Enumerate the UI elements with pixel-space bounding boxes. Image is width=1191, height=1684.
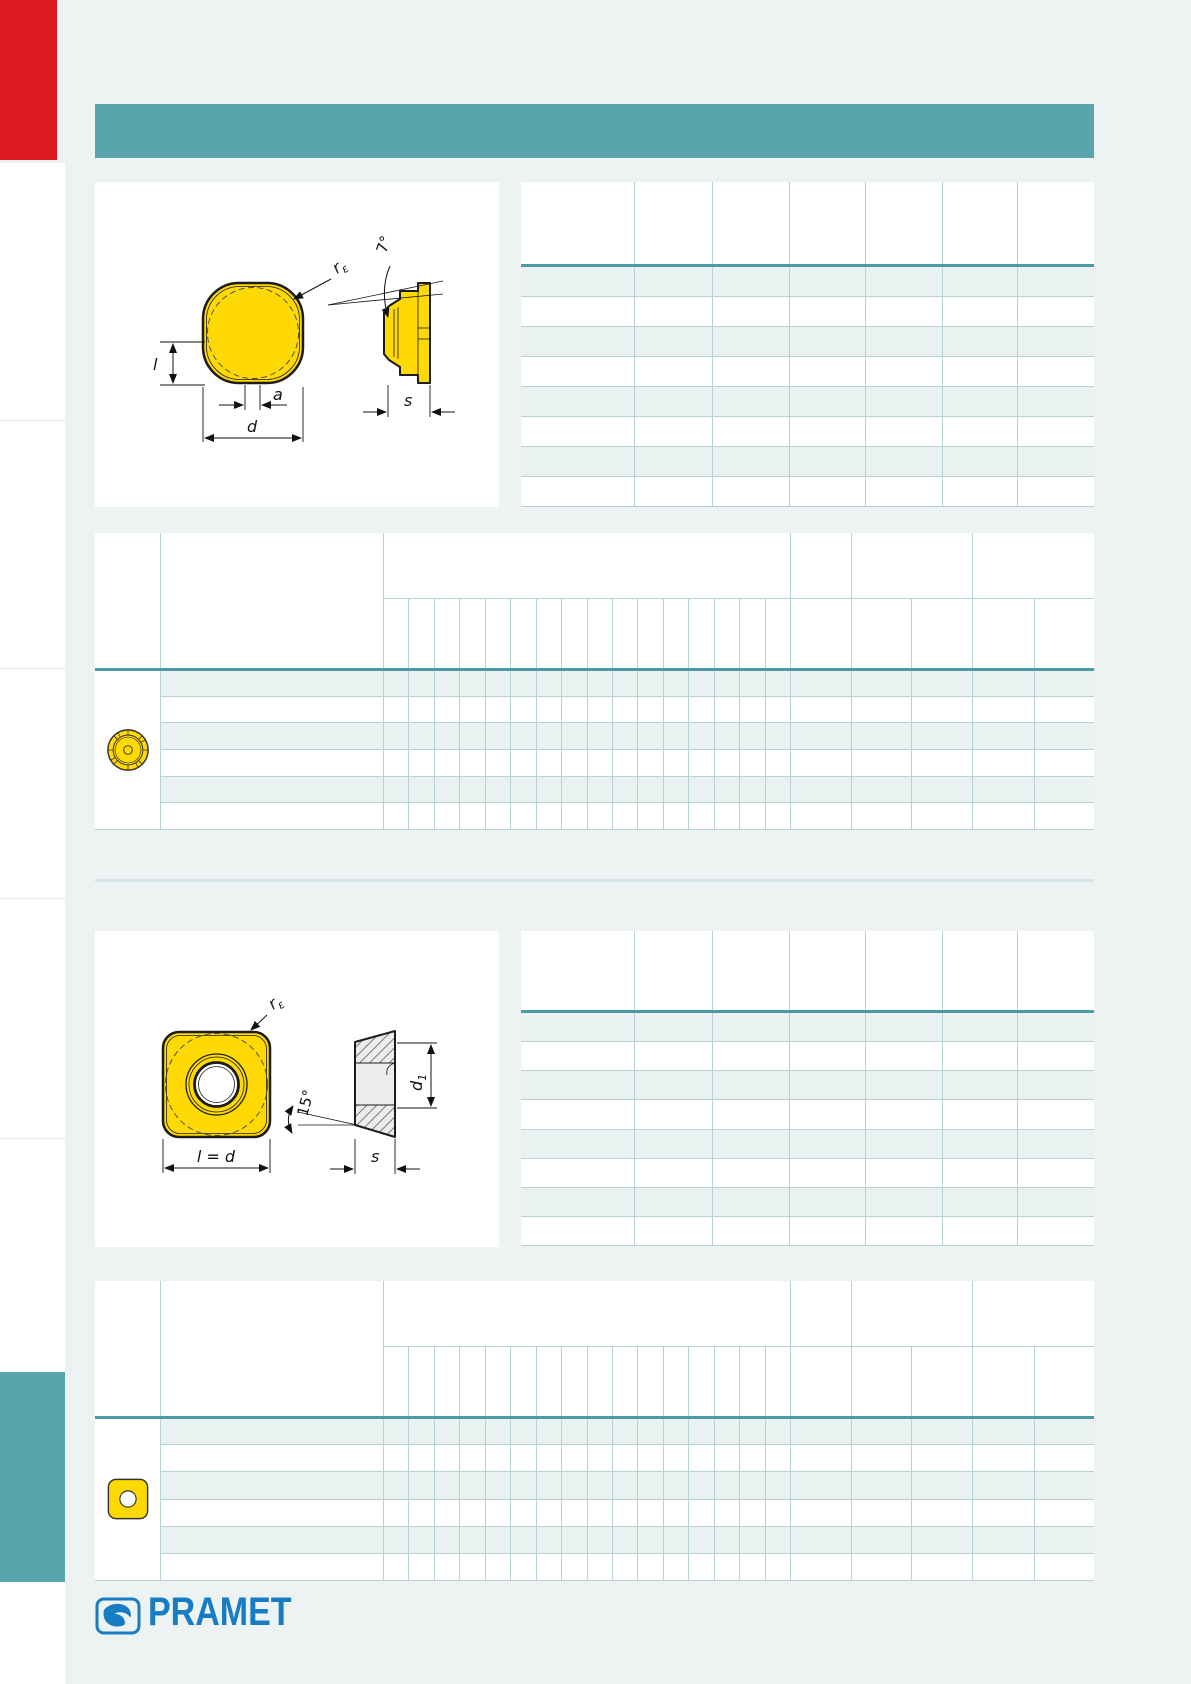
table-subcolumn-line	[434, 598, 435, 830]
table-column-line	[865, 182, 866, 507]
size-label: l = d	[197, 1147, 236, 1166]
table-column-line	[160, 1281, 161, 1581]
table-row-stripe	[521, 447, 1094, 477]
table-subcolumn-line	[739, 598, 740, 830]
round-insert-icon	[105, 727, 151, 773]
table-subcolumn-line	[459, 598, 460, 830]
table-subcolumn-line	[408, 1346, 409, 1581]
table-row-line	[521, 1245, 1094, 1246]
table-subcolumn-line	[510, 598, 511, 830]
round-insert-drawing: rε l a d	[95, 182, 499, 507]
catalog-page: rε l a d	[0, 0, 1191, 1684]
table-subcolumn-line	[765, 598, 766, 830]
table-row-line	[160, 1499, 1094, 1500]
table-bottom-line	[95, 1580, 1094, 1581]
table-row-stripe	[521, 1130, 1094, 1159]
table-row-stripe	[160, 1472, 1094, 1499]
square-insert-grades-table	[95, 1281, 1094, 1581]
table-row-line	[160, 749, 1094, 750]
table-subcolumn-line	[637, 1346, 638, 1581]
table-subcolumn-line	[739, 1346, 740, 1581]
table-subcolumn-line	[485, 598, 486, 830]
round-insert-front-view	[203, 283, 303, 383]
table-column-line	[712, 182, 713, 507]
table-row-stripe	[160, 1527, 1094, 1554]
table-subcolumn-line	[612, 1346, 613, 1581]
corner-radius-label: rε	[251, 990, 287, 1030]
square-insert-icon	[106, 1477, 150, 1521]
square-insert-section-view: 15° s d1	[288, 1031, 437, 1174]
table-header-underline	[95, 668, 1094, 671]
flat-label: a	[273, 385, 283, 404]
table-column-line	[851, 533, 852, 830]
svg-text:rε: rε	[264, 990, 287, 1015]
square-insert-dimensions-table	[521, 931, 1094, 1246]
table-column-line	[712, 931, 713, 1246]
table-column-line	[790, 533, 791, 830]
table-column-line	[634, 931, 635, 1246]
table-subcolumn-line	[587, 1346, 588, 1581]
table-subcolumn-line	[459, 1346, 460, 1581]
table-subcolumn-line	[485, 1346, 486, 1581]
table-header-underline	[521, 1010, 1094, 1013]
table-row-stripe	[160, 1418, 1094, 1445]
diameter-label: d	[247, 417, 258, 436]
round-insert-side-view: 7° s	[328, 233, 455, 417]
table-subcolumn-line	[663, 598, 664, 830]
table-bottom-line	[95, 829, 1094, 830]
table-subcolumn-line	[1034, 598, 1035, 830]
table-row-stripe	[521, 1013, 1094, 1042]
round-insert-grades-table	[95, 533, 1094, 830]
table-subcolumn-line	[911, 1346, 912, 1581]
sidebar-tab-divider	[0, 420, 65, 421]
table-header-midline	[383, 598, 1094, 599]
sidebar-tab-divider	[0, 898, 65, 899]
table-row-stripe	[521, 1071, 1094, 1100]
hole-diameter-label: d1	[407, 1074, 429, 1091]
table-column-line	[851, 1281, 852, 1581]
table-row-line	[160, 1553, 1094, 1554]
ramp-angle-label: 15°	[293, 1088, 317, 1118]
table-row-line	[521, 416, 1094, 417]
table-column-line	[789, 931, 790, 1246]
table-column-line	[789, 182, 790, 507]
table-row-line	[160, 1444, 1094, 1445]
table-column-line	[942, 931, 943, 1246]
table-subcolumn-line	[536, 598, 537, 830]
table-row-line	[160, 802, 1094, 803]
table-subcolumn-line	[434, 1346, 435, 1581]
table-subcolumn-line	[561, 598, 562, 830]
table-row-line	[521, 506, 1094, 507]
table-row-line	[521, 476, 1094, 477]
table-subcolumn-line	[587, 598, 588, 830]
table-subcolumn-line	[714, 1346, 715, 1581]
table-row-line	[521, 1158, 1094, 1159]
table-column-line	[383, 1281, 384, 1581]
table-row-stripe	[160, 670, 1094, 697]
round-insert-drawing-svg: rε l a d	[95, 182, 499, 507]
table-row-stripe	[160, 777, 1094, 804]
table-header-underline	[521, 264, 1094, 267]
square-insert-drawing-svg: rε l = d 15°	[95, 931, 499, 1247]
pramet-logo-text: PRAMET	[148, 1590, 292, 1634]
table-subcolumn-line	[536, 1346, 537, 1581]
table-column-line	[160, 533, 161, 830]
pramet-logo: PRAMET	[95, 1590, 395, 1640]
sidebar-tab-divider	[0, 668, 65, 669]
sidebar-tab-divider	[0, 1138, 65, 1139]
clearance-angle-label: 7°	[373, 233, 395, 255]
table-subcolumn-line	[714, 598, 715, 830]
table-column-line	[1017, 931, 1018, 1246]
table-row-stripe	[160, 723, 1094, 750]
round-insert-dimensions-table	[521, 182, 1094, 507]
table-column-line	[865, 931, 866, 1246]
sidebar-active-tab-marker	[0, 1372, 65, 1582]
table-subcolumn-line	[663, 1346, 664, 1581]
table-header-underline	[95, 1416, 1094, 1419]
section-header-band	[95, 104, 1094, 158]
table-column-line	[383, 533, 384, 830]
square-insert-front-view	[163, 1032, 270, 1137]
table-column-line	[790, 1281, 791, 1581]
table-row-stripe	[521, 267, 1094, 297]
table-column-line	[1017, 182, 1018, 507]
table-subcolumn-line	[911, 598, 912, 830]
section-divider	[95, 879, 1094, 882]
table-subcolumn-line	[510, 1346, 511, 1581]
table-row-line	[521, 1099, 1094, 1100]
table-row-line	[521, 1216, 1094, 1217]
table-subcolumn-line	[637, 598, 638, 830]
table-row-stripe	[521, 327, 1094, 357]
table-subcolumn-line	[612, 598, 613, 830]
table-row-line	[521, 296, 1094, 297]
table-row-stripe	[521, 387, 1094, 417]
table-subcolumn-line	[688, 1346, 689, 1581]
table-subcolumn-line	[765, 1346, 766, 1581]
table-column-line	[942, 182, 943, 507]
table-column-line	[972, 533, 973, 830]
table-column-line	[972, 1281, 973, 1581]
table-row-line	[160, 696, 1094, 697]
thickness-label: s	[404, 391, 412, 410]
table-column-line	[634, 182, 635, 507]
table-subcolumn-line	[1034, 1346, 1035, 1581]
corner-radius-label: rε	[294, 254, 351, 299]
table-subcolumn-line	[408, 598, 409, 830]
sidebar-tab	[0, 1582, 65, 1684]
svg-text:rε: rε	[328, 254, 351, 279]
length-label: l	[153, 355, 158, 374]
table-subcolumn-line	[688, 598, 689, 830]
table-header-midline	[383, 1346, 1094, 1347]
table-subcolumn-line	[561, 1346, 562, 1581]
thickness-label: s	[371, 1147, 379, 1166]
pramet-logo-icon	[95, 1597, 141, 1635]
sidebar-tabs	[0, 163, 65, 1372]
table-row-line	[521, 356, 1094, 357]
square-insert-drawing: rε l = d 15°	[95, 931, 499, 1247]
table-row-line	[521, 1041, 1094, 1042]
table-row-stripe	[521, 1188, 1094, 1217]
length-dimension	[160, 342, 205, 385]
page-corner-marker	[0, 0, 57, 160]
